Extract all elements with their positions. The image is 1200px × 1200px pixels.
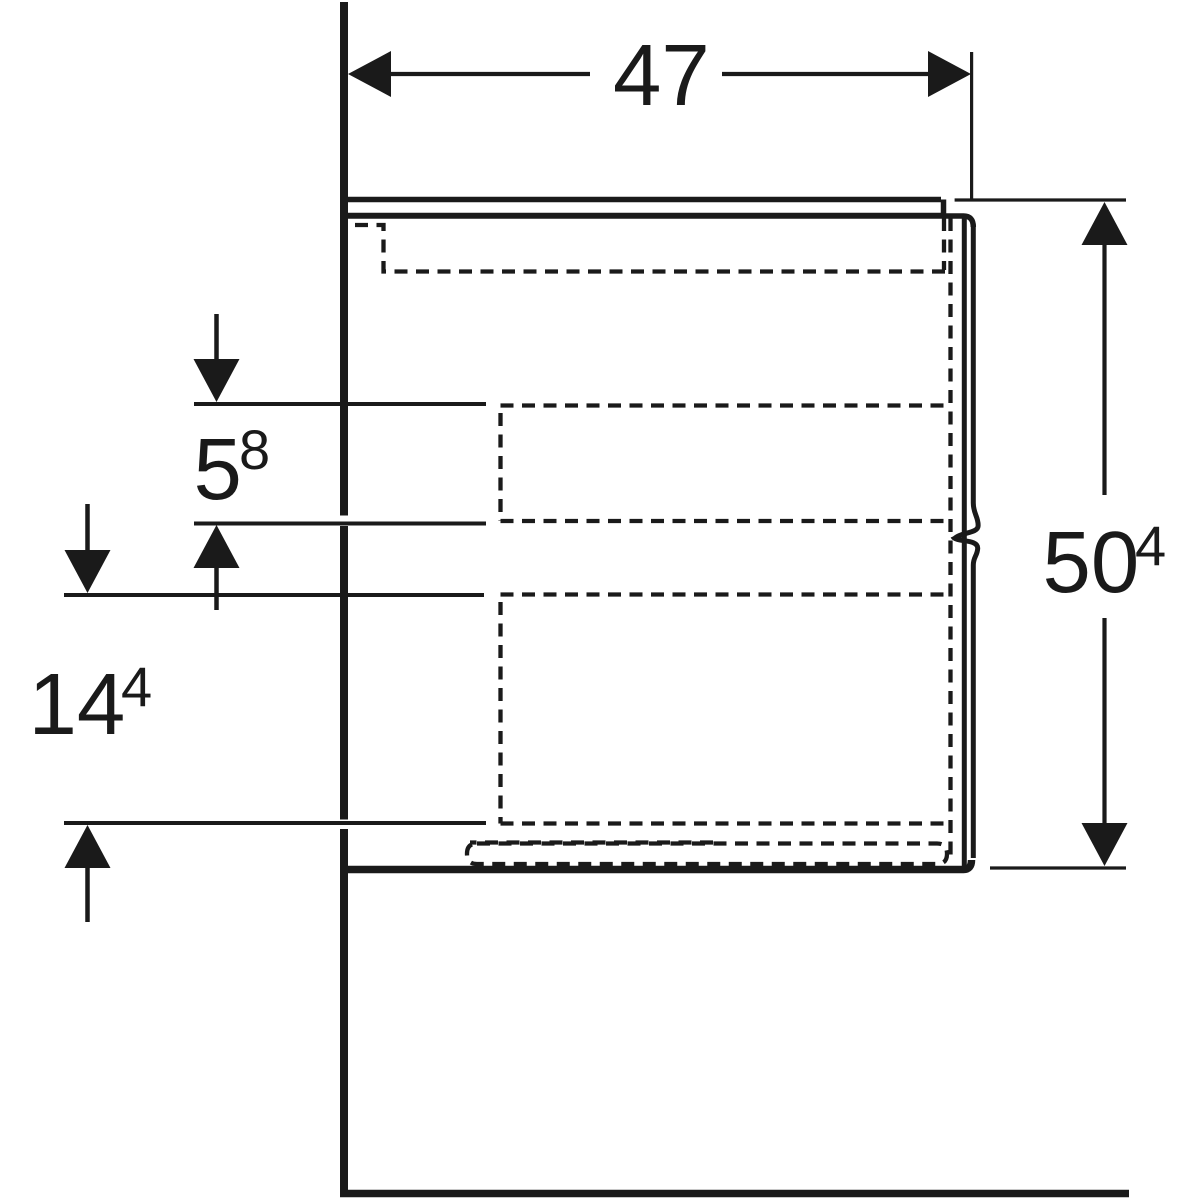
svg-text:4: 4	[1135, 514, 1166, 577]
svg-text:14: 14	[29, 656, 126, 753]
svg-text:4: 4	[121, 655, 152, 718]
svg-text:5: 5	[194, 421, 242, 518]
svg-text:47: 47	[613, 27, 710, 124]
svg-text:8: 8	[239, 418, 270, 481]
svg-text:50: 50	[1043, 514, 1140, 611]
